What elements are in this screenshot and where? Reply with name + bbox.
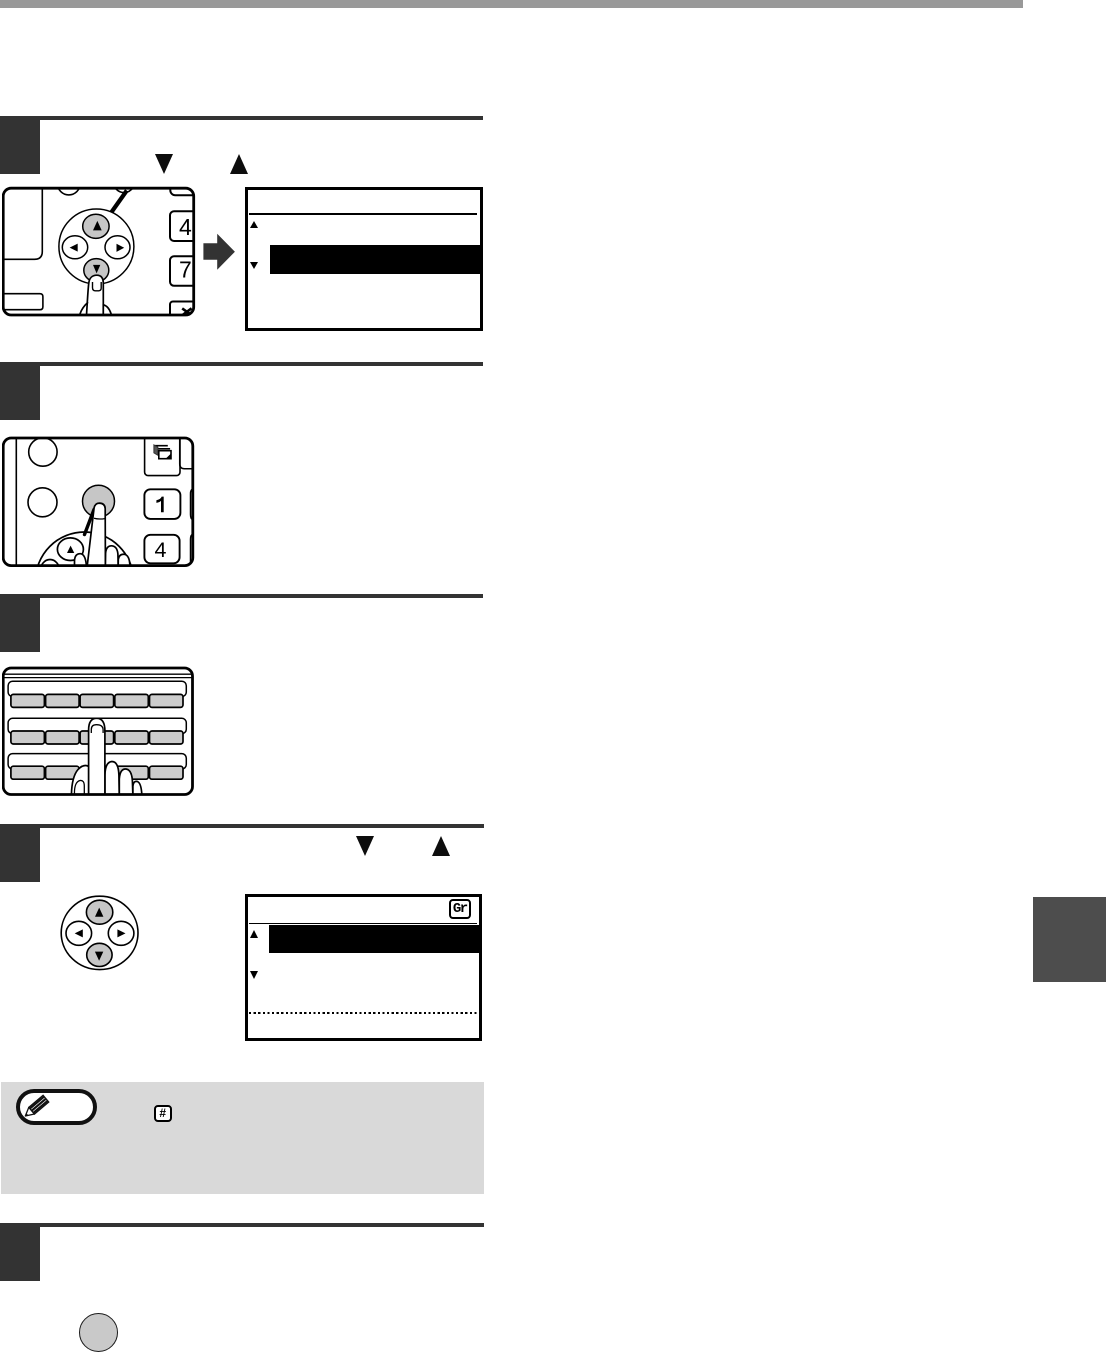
- svg-text:4: 4: [155, 538, 167, 562]
- svg-text:4: 4: [179, 214, 192, 240]
- svg-text:7: 7: [179, 256, 192, 282]
